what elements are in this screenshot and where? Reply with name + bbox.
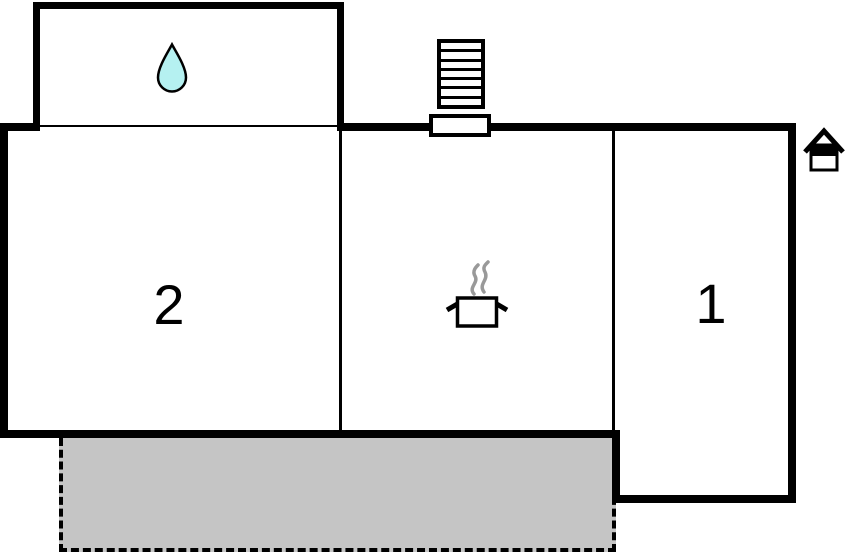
steam-left: [472, 265, 478, 294]
wall-bathroom-right: [337, 2, 344, 131]
water-drop-shape: [158, 45, 186, 92]
bedroom-2-label: 2: [153, 277, 184, 333]
bedroom-1-label: 1: [695, 276, 726, 332]
wall-divider-kitchen-bedroom1: [612, 127, 615, 433]
wall-divider-bedroom2-kitchen: [339, 127, 342, 433]
wall-bedroom1-left-lower: [612, 430, 620, 503]
wall-left-main: [0, 123, 8, 438]
water-drop-icon: [155, 42, 189, 94]
terrace-area: [59, 438, 616, 552]
wall-bedroom1-right: [788, 123, 796, 503]
steam-right: [482, 262, 488, 292]
wall-bedroom1-bottom: [612, 495, 796, 503]
pot-body: [458, 298, 497, 326]
wall-bathroom-bottom-thin: [40, 125, 339, 127]
entrance-house-icon: [801, 127, 847, 173]
wall-bathroom-top: [33, 2, 344, 9]
entry-door: [429, 114, 491, 137]
cooking-pot-icon: [444, 252, 510, 330]
stairs-icon: [437, 39, 485, 109]
floor-plan: 2 1: [0, 0, 850, 556]
wall-top-main: [337, 123, 796, 131]
wall-bottom-main: [0, 430, 620, 438]
wall-bathroom-left: [33, 2, 40, 129]
